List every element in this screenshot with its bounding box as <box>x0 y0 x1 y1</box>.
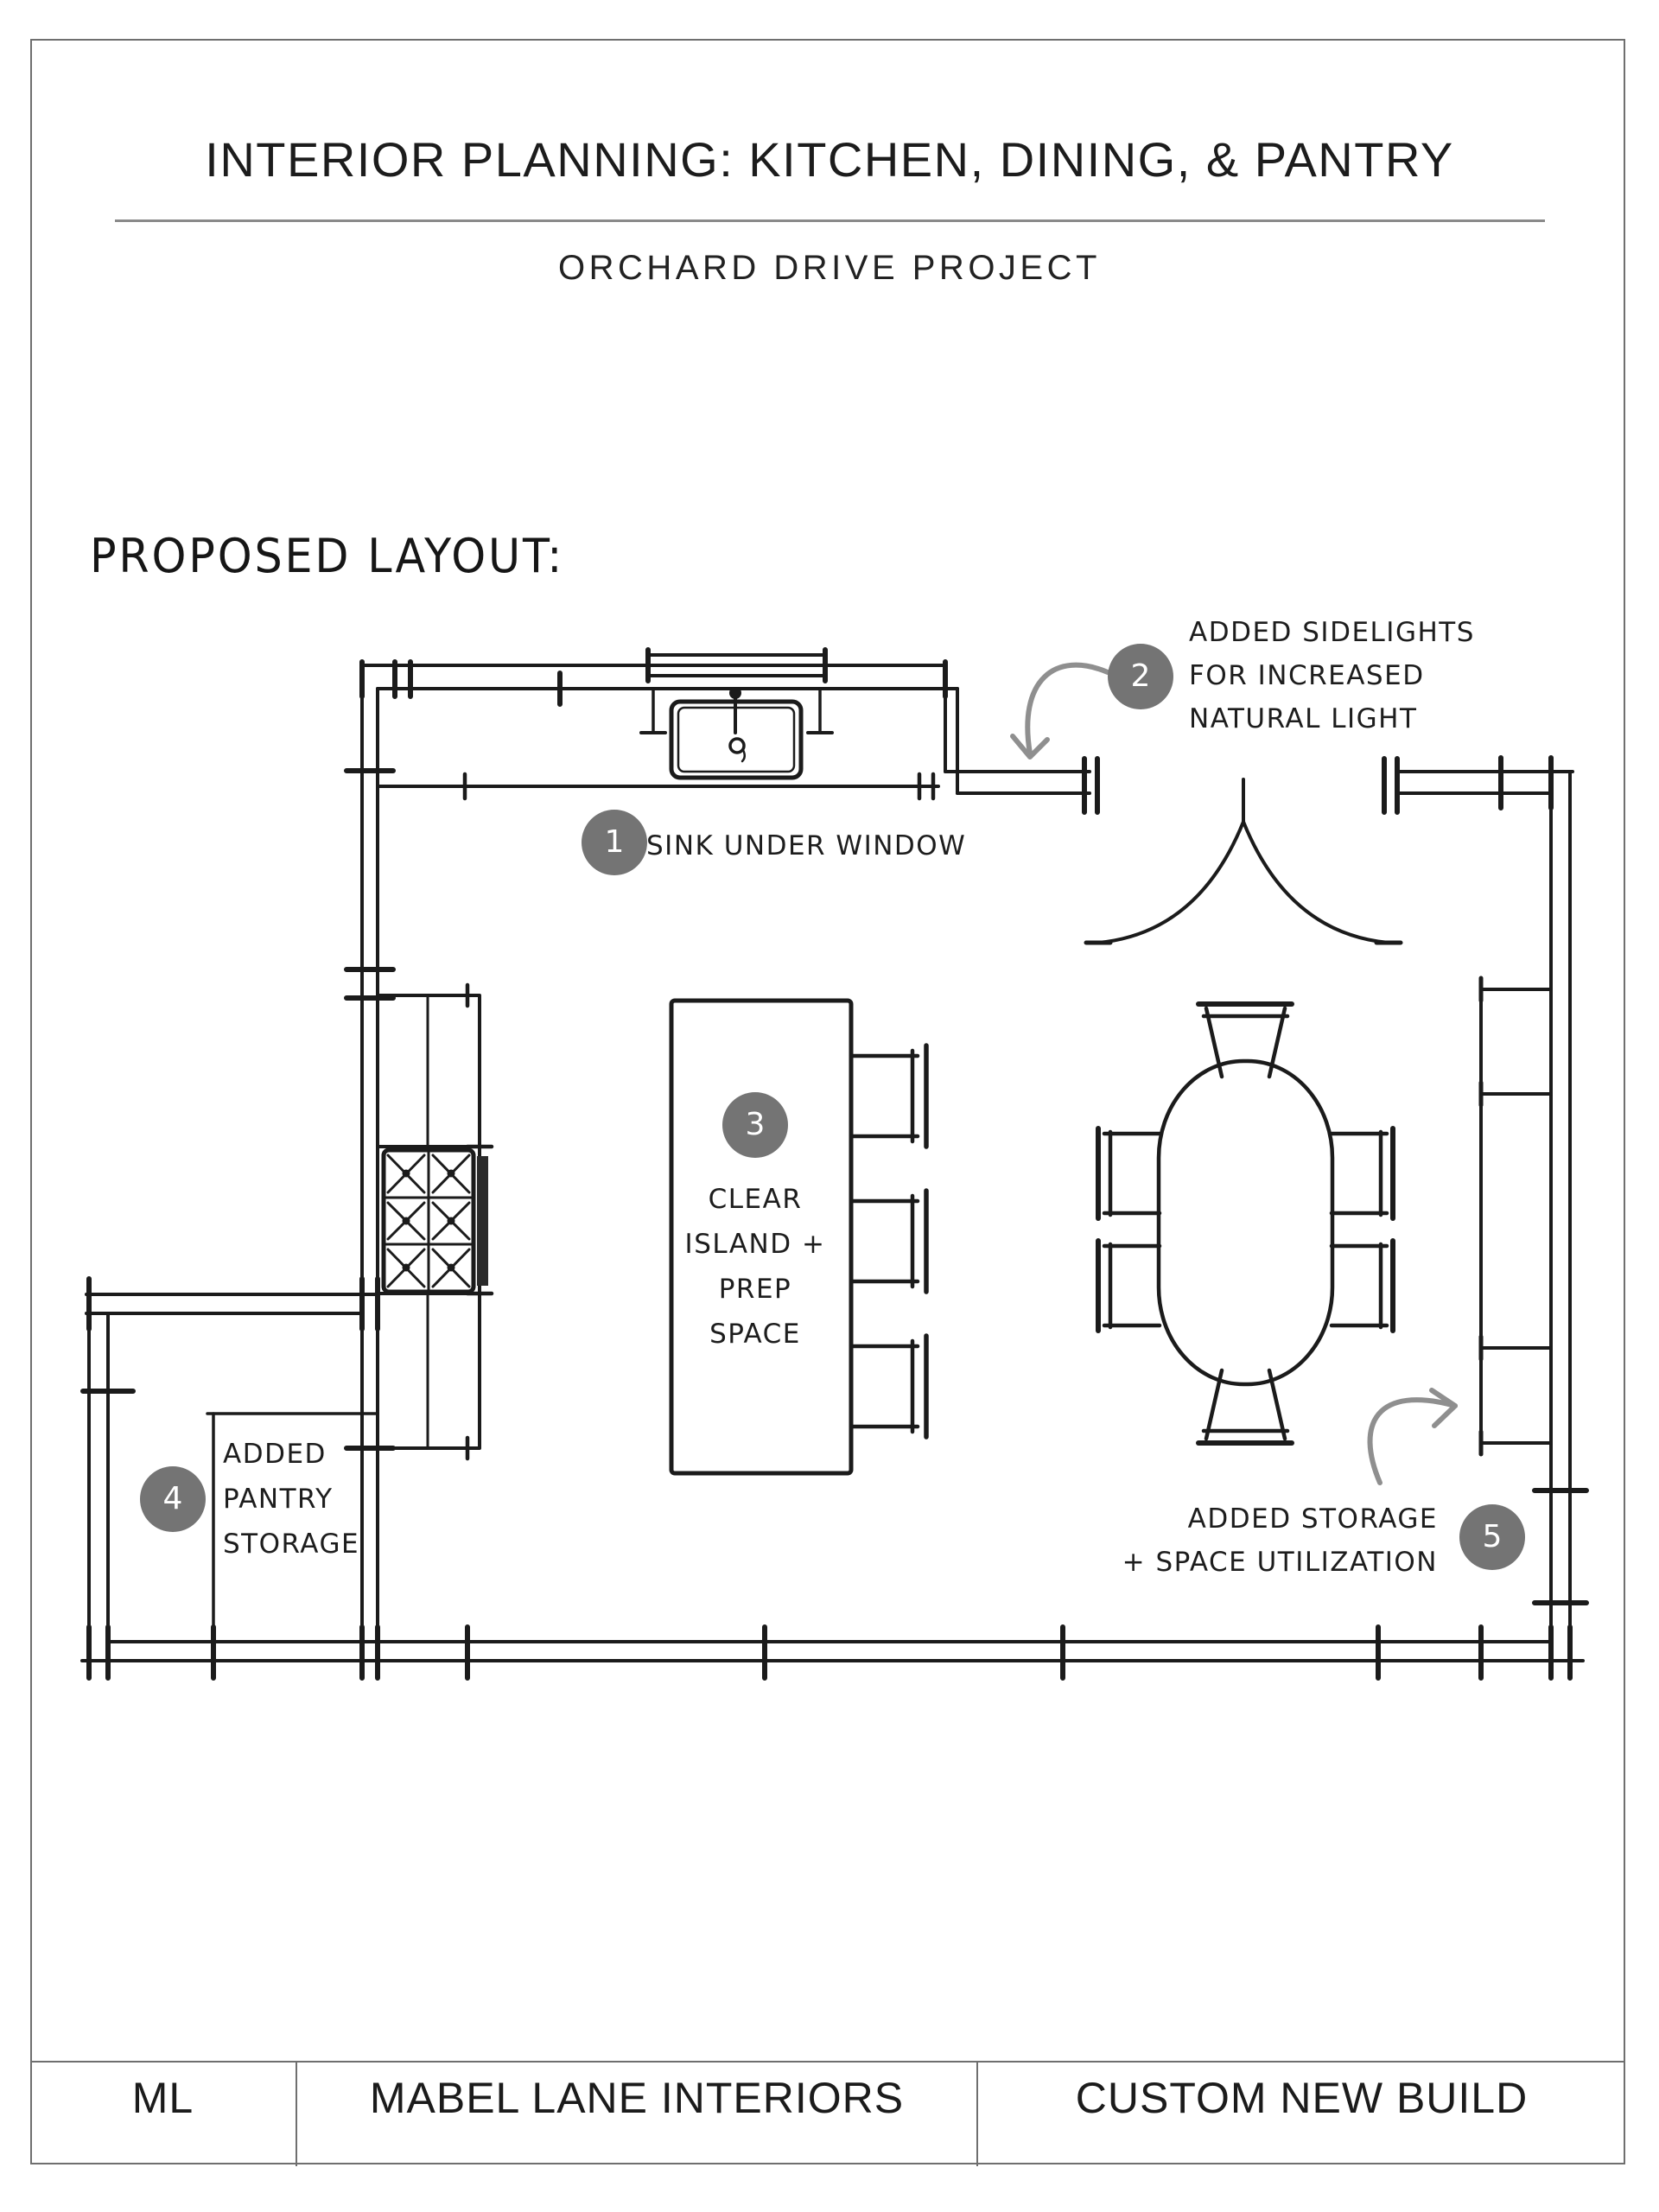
annotation-3-badge: 3 <box>722 1092 788 1158</box>
annotation-4-label: ADDED PANTRY STORAGE <box>223 1432 359 1567</box>
annotation-4-badge: 4 <box>140 1466 206 1532</box>
section-heading: PROPOSED LAYOUT: <box>90 529 564 583</box>
annotation-1-number: 1 <box>605 827 625 858</box>
annotation-2-badge: 2 <box>1108 644 1173 709</box>
annotation-5-number: 5 <box>1483 1522 1503 1553</box>
annotation-2-label: ADDED SIDELIGHTS FOR INCREASED NATURAL L… <box>1189 611 1475 741</box>
annotation-5-label: ADDED STORAGE + SPACE UTILIZATION <box>1002 1497 1438 1584</box>
annotation-4-number: 4 <box>163 1484 183 1515</box>
annotation-1-label: SINK UNDER WINDOW <box>646 824 966 868</box>
footer-project-type: CUSTOM NEW BUILD <box>976 2063 1625 2166</box>
dining-chairs-drawing <box>1098 1004 1393 1443</box>
sink-drawing <box>671 687 801 778</box>
annotation-2-number: 2 <box>1131 661 1151 692</box>
annotation-5-arrow <box>1370 1390 1455 1483</box>
range-stove-drawing <box>384 1150 488 1292</box>
title-divider <box>115 219 1545 222</box>
annotation-2-arrow <box>1013 665 1108 757</box>
footer-company-name: MABEL LANE INTERIORS <box>296 2063 976 2166</box>
annotation-3-number: 3 <box>746 1109 766 1141</box>
footer-title-block: ML MABEL LANE INTERIORS CUSTOM NEW BUILD <box>30 2061 1625 2166</box>
french-doors-drawing <box>1086 779 1401 943</box>
storage-shelves-drawing <box>1481 978 1551 1454</box>
page-title: INTERIOR PLANNING: KITCHEN, DINING, & PA… <box>30 131 1629 188</box>
annotation-3-label: CLEAR ISLAND + PREP SPACE <box>643 1177 868 1357</box>
footer-logo: ML <box>30 2063 296 2166</box>
annotation-1-badge: 1 <box>582 810 647 875</box>
annotation-5-badge: 5 <box>1459 1504 1525 1570</box>
dining-table-drawing <box>1159 1061 1332 1384</box>
design-sheet: INTERIOR PLANNING: KITCHEN, DINING, & PA… <box>0 0 1659 2212</box>
page-subtitle: ORCHARD DRIVE PROJECT <box>30 249 1629 288</box>
